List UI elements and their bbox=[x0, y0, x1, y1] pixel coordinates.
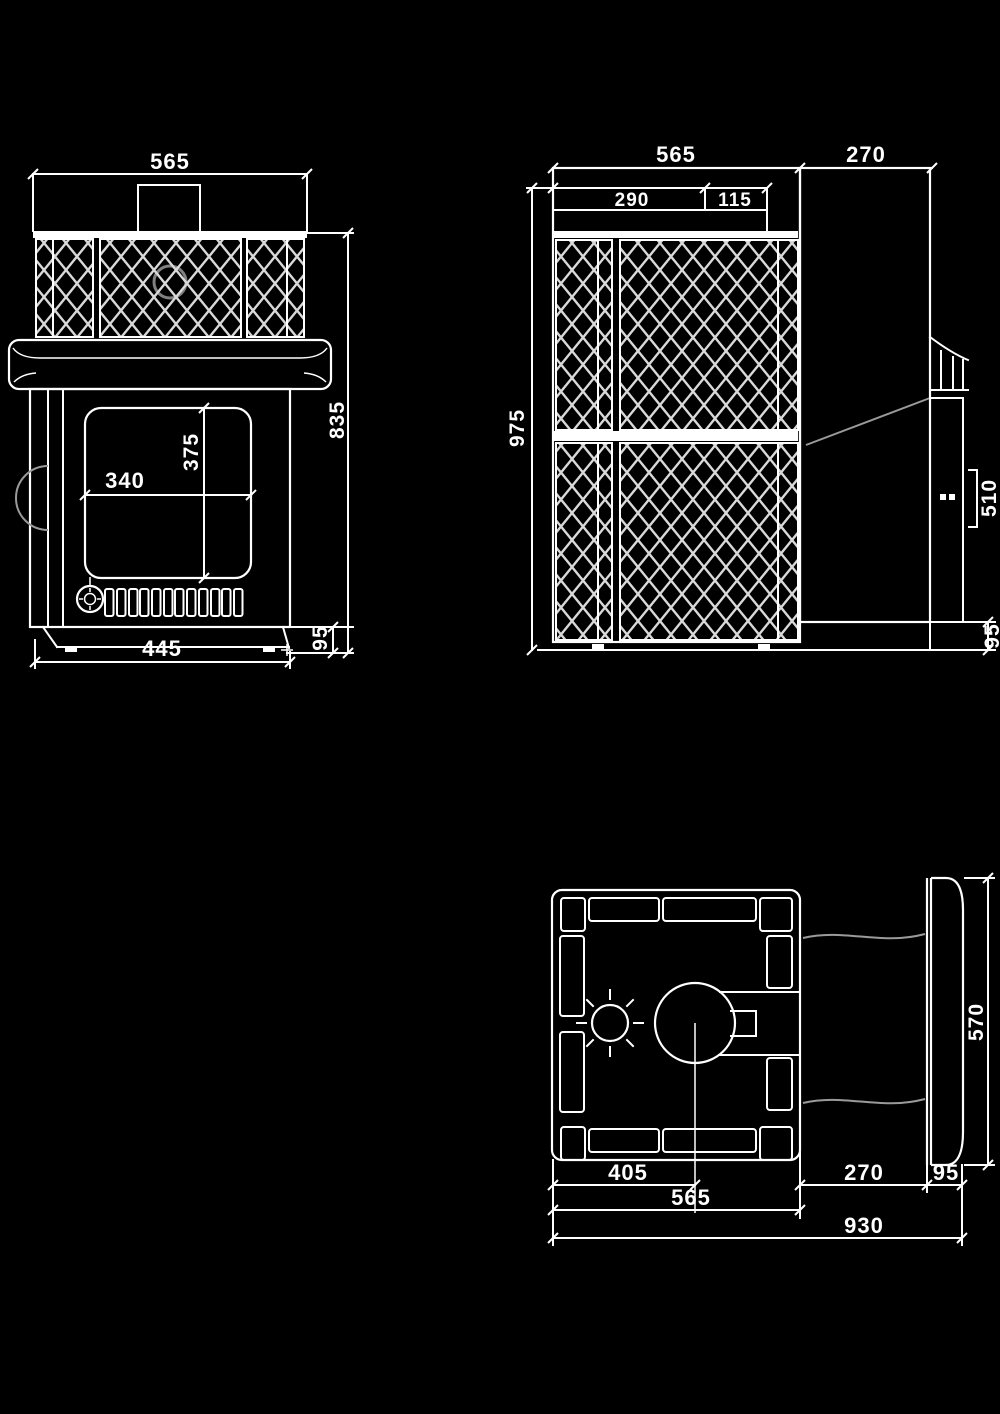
dim-label-chimney-offset: 290 bbox=[615, 190, 650, 211]
top-plate bbox=[33, 231, 307, 238]
flange-hole bbox=[949, 494, 955, 500]
dim-label-side-depth: 565 bbox=[656, 142, 696, 167]
mesh-panel bbox=[100, 239, 241, 337]
dim-label-flange-height: 570 bbox=[965, 1003, 988, 1041]
dim-label-plan-flange: 95 bbox=[933, 1160, 959, 1185]
foot bbox=[65, 647, 77, 652]
mid-band bbox=[554, 431, 798, 441]
dim-label-front-top-width: 565 bbox=[150, 149, 190, 174]
mesh-panel bbox=[556, 240, 612, 430]
dim-label-plan-tunnel: 270 bbox=[844, 1160, 884, 1185]
dim-label-front-base-height: 95 bbox=[309, 625, 332, 650]
dim-label-front-body-height: 835 bbox=[326, 401, 349, 439]
mesh-panel bbox=[620, 443, 798, 640]
flange-hole bbox=[940, 494, 946, 500]
foot bbox=[263, 647, 275, 652]
dim-label-plan-chimney-center: 405 bbox=[608, 1160, 648, 1185]
dim-label-glass-height: 375 bbox=[180, 433, 203, 471]
mesh-panel bbox=[247, 239, 304, 337]
dim-label-front-base-width: 445 bbox=[142, 636, 182, 661]
stove-technical-drawing: 565 340 375 bbox=[0, 0, 1000, 1414]
dim-label-plan-total-depth: 930 bbox=[844, 1213, 884, 1238]
dim-label-plan-depth: 565 bbox=[671, 1185, 711, 1210]
top-plate bbox=[553, 231, 798, 238]
dim-label-side-tunnel: 270 bbox=[846, 142, 886, 167]
mesh-panel bbox=[556, 443, 612, 640]
dim-label-chimney-width: 115 bbox=[718, 190, 752, 211]
background bbox=[0, 0, 1000, 1414]
dim-label-side-base-height: 95 bbox=[981, 623, 1000, 648]
foot bbox=[758, 644, 770, 650]
foot bbox=[592, 644, 604, 650]
mesh-panel bbox=[36, 239, 93, 337]
dim-label-side-total-height: 975 bbox=[506, 409, 529, 447]
drawing-canvas: 565 340 375 bbox=[0, 0, 1000, 1414]
dim-label-glass-width: 340 bbox=[105, 468, 145, 493]
dim-label-door-frame: 510 bbox=[978, 479, 1000, 517]
mesh-panel bbox=[620, 240, 798, 430]
